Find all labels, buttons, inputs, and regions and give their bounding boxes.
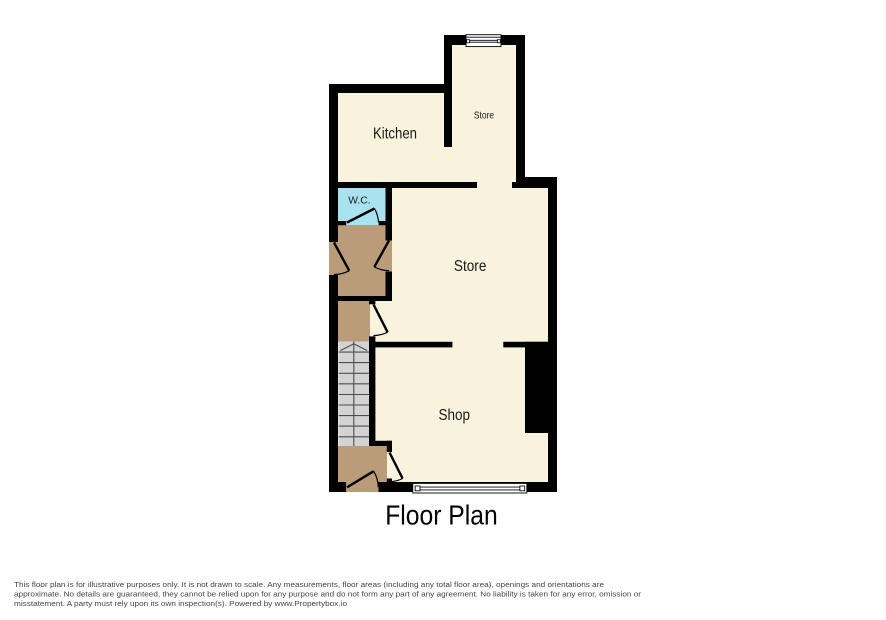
svg-text:Shop: Shop (439, 407, 471, 424)
svg-text:Kitchen: Kitchen (373, 126, 417, 143)
svg-text:Floor Plan: Floor Plan (385, 500, 498, 531)
svg-text:misstatement. A party must rel: misstatement. A party must rely upon its… (14, 599, 347, 608)
svg-text:W.C.: W.C. (348, 195, 370, 207)
svg-text:This floor plan is for illustr: This floor plan is for illustrative purp… (14, 580, 604, 589)
svg-text:Store: Store (454, 258, 487, 275)
svg-text:approximate. No details are gu: approximate. No details are guaranteed, … (14, 590, 641, 599)
svg-text:Store: Store (474, 111, 495, 122)
